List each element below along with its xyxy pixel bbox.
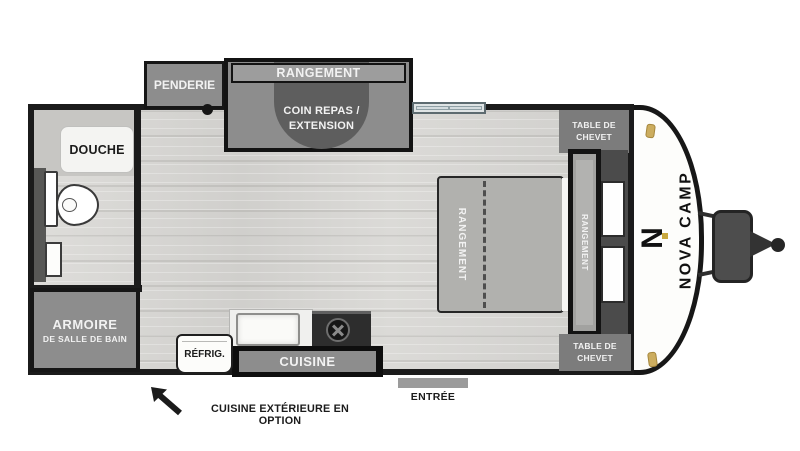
bathroom-wall: [134, 104, 141, 292]
bathroom-small-cabinet: [45, 242, 62, 277]
shower-label: DOUCHE: [69, 143, 124, 157]
dinette-label-line2: EXTENSION: [289, 119, 354, 134]
window-pane: [449, 106, 482, 110]
toilet-flush-icon: [62, 198, 77, 212]
window: [412, 102, 486, 114]
refrigerator: RÉFRIG.: [176, 334, 233, 374]
shower-pan: DOUCHE: [60, 126, 134, 173]
fridge-door-seam: [182, 341, 227, 342]
tongue-jack: [712, 210, 753, 283]
window-pane: [416, 106, 449, 110]
dinette-label-line1: COIN REPAS /: [283, 104, 359, 119]
closet-door: [601, 246, 625, 303]
entry-door-step: [398, 378, 468, 388]
kitchen-label-bar: CUISINE: [239, 351, 376, 372]
door-stop-dot-icon: [202, 104, 213, 115]
marker-light-bottom-icon: [647, 351, 658, 367]
brand-name: NOVA CAMP: [668, 160, 704, 300]
bathroom-cabinet: ARMOIRE DE SALLE DE BAIN: [30, 288, 140, 372]
kitchen-sink: [236, 313, 300, 346]
entry-label: ENTRÉE: [398, 391, 468, 403]
front-closet-panel: [597, 150, 628, 335]
armoire-label-line2: DE SALLE DE BAIN: [43, 334, 127, 344]
option-note: CUISINE EXTÉRIEURE EN OPTION: [192, 403, 368, 427]
nightstand-bottom: TABLE DE CHEVET: [559, 334, 631, 371]
rv-floor-plan: N NOVA CAMP DOUCHE ARMOIRE DE SALLE DE B…: [0, 0, 800, 451]
stove-burner-icon: [326, 318, 350, 342]
bed-storage-label: RANGEMENT: [437, 176, 487, 313]
overhead-storage: RANGEMENT: [231, 63, 406, 83]
hitch-ball: [771, 238, 785, 252]
wardrobe-penderie: PENDERIE: [144, 61, 225, 109]
closet-door: [601, 181, 625, 237]
nightstand-top: TABLE DE CHEVET: [559, 110, 629, 153]
headboard-storage-label: RANGEMENT: [568, 149, 601, 336]
option-arrow-icon: [150, 386, 186, 416]
armoire-label-line1: ARMOIRE: [53, 317, 118, 332]
